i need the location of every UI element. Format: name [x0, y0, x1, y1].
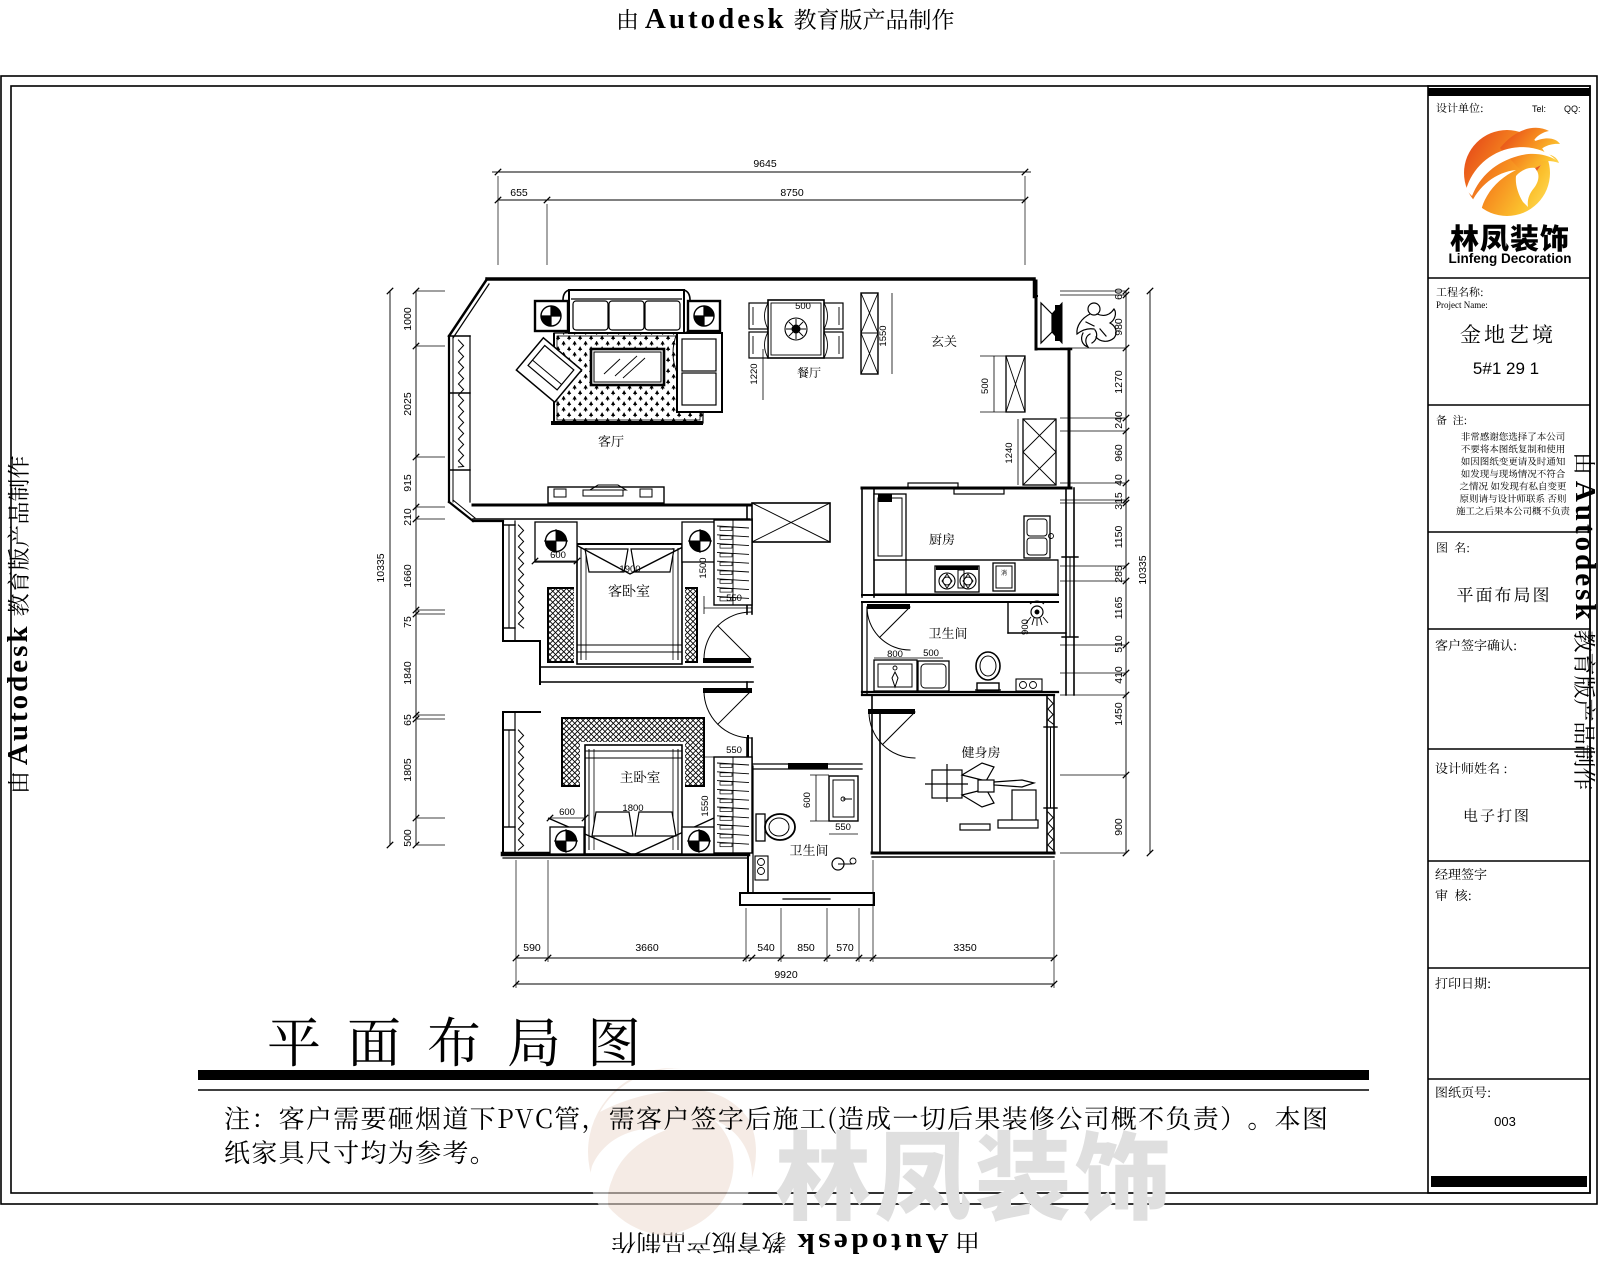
svg-text:1220: 1220: [749, 363, 760, 384]
svg-text:600: 600: [550, 550, 566, 561]
svg-text:1550: 1550: [878, 325, 889, 346]
svg-text:600: 600: [559, 807, 575, 818]
svg-text:550: 550: [726, 745, 742, 756]
svg-text:10335: 10335: [375, 553, 387, 582]
svg-text:570: 570: [836, 942, 854, 954]
svg-text:540: 540: [757, 942, 775, 954]
svg-text:9645: 9645: [753, 158, 777, 170]
svg-text:980: 980: [1113, 318, 1125, 336]
svg-text:285: 285: [1113, 565, 1125, 583]
svg-text:210: 210: [402, 508, 414, 526]
svg-text:Project Name:: Project Name:: [1436, 300, 1488, 310]
svg-text:2025: 2025: [402, 392, 414, 416]
svg-text:600: 600: [802, 792, 813, 808]
svg-text:Tel:: Tel:: [1532, 104, 1546, 114]
svg-text:3660: 3660: [635, 942, 659, 954]
svg-text:40: 40: [1113, 474, 1125, 486]
svg-text:960: 960: [1113, 444, 1125, 462]
svg-text:510: 510: [1113, 635, 1125, 653]
svg-text:590: 590: [523, 942, 541, 954]
svg-text:1550: 1550: [700, 795, 711, 816]
svg-text:550: 550: [726, 593, 742, 604]
svg-text:1150: 1150: [1113, 526, 1125, 549]
svg-text:8750: 8750: [780, 187, 804, 199]
svg-text:Linfeng Decoration: Linfeng Decoration: [1448, 251, 1571, 266]
svg-text:1800: 1800: [622, 803, 643, 814]
svg-text:1900: 1900: [619, 564, 640, 575]
svg-text:Autodesk: Autodesk: [1569, 481, 1600, 623]
svg-text:3350: 3350: [953, 942, 977, 954]
svg-text:75: 75: [402, 616, 414, 628]
svg-text:Autodesk: Autodesk: [2, 623, 34, 765]
svg-text:1240: 1240: [1004, 442, 1015, 463]
svg-text:500: 500: [923, 648, 939, 659]
svg-text:500: 500: [795, 301, 811, 312]
svg-text:1165: 1165: [1113, 597, 1125, 620]
svg-text:消: 消: [1001, 569, 1007, 577]
svg-text:655: 655: [510, 187, 528, 199]
svg-text:915: 915: [402, 474, 414, 492]
svg-text:1805: 1805: [402, 758, 414, 782]
svg-text:Autodesk: Autodesk: [794, 1227, 948, 1260]
svg-text:850: 850: [797, 942, 815, 954]
svg-text:900: 900: [1113, 818, 1125, 836]
svg-text:500: 500: [402, 829, 414, 847]
svg-text:5#1 29 1: 5#1 29 1: [1473, 359, 1539, 378]
svg-text:65: 65: [402, 714, 414, 726]
svg-text:003: 003: [1494, 1114, 1516, 1129]
svg-text:315: 315: [1113, 492, 1125, 510]
svg-text:QQ:: QQ:: [1564, 104, 1581, 114]
svg-text:240: 240: [1113, 411, 1125, 429]
svg-text:550: 550: [835, 822, 851, 833]
svg-text:1000: 1000: [402, 307, 414, 331]
svg-text:410: 410: [1113, 666, 1125, 684]
svg-text:900: 900: [1020, 619, 1031, 635]
svg-text:Autodesk: Autodesk: [645, 3, 787, 35]
svg-text:1660: 1660: [402, 564, 414, 588]
svg-text:1450: 1450: [1113, 702, 1125, 726]
svg-text:60: 60: [1113, 288, 1125, 300]
svg-text:1270: 1270: [1113, 370, 1125, 394]
svg-text:1840: 1840: [402, 661, 414, 685]
svg-text:500: 500: [980, 378, 991, 394]
svg-text:10335: 10335: [1137, 555, 1149, 584]
svg-text:1500: 1500: [698, 557, 709, 578]
svg-text:9920: 9920: [774, 969, 798, 981]
